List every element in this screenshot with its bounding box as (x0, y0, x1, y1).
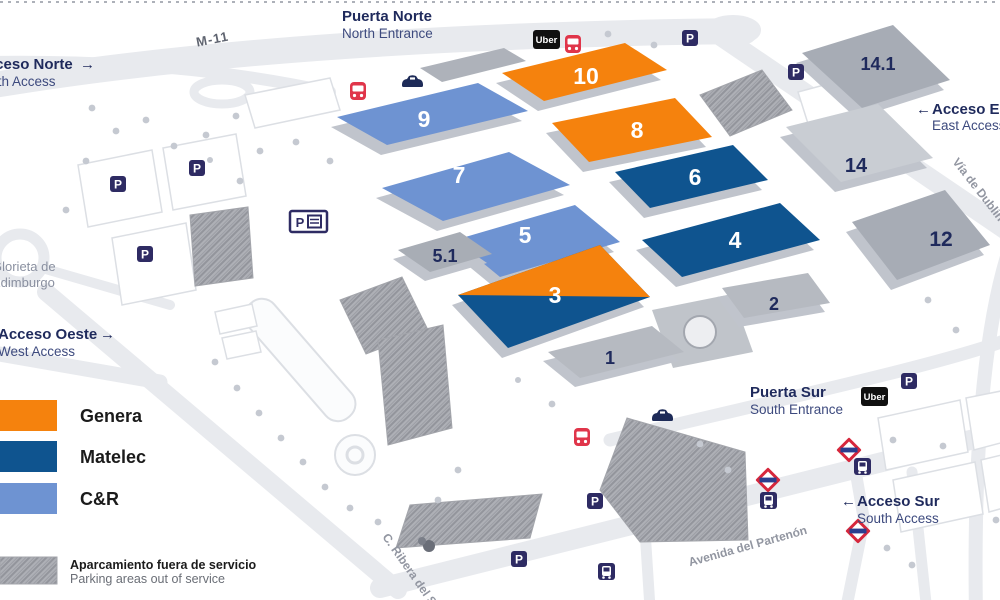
parking-icon: P (788, 64, 804, 80)
acceso-sur-arrow-icon: ← (841, 493, 856, 510)
acceso-norte-arrow-icon: → (80, 56, 95, 73)
hall-2: 2 (717, 273, 830, 327)
bus-icon (350, 82, 366, 100)
puerta-sur-subtitle: South Entrance (750, 402, 843, 417)
svg-text:Uber: Uber (864, 392, 886, 403)
legend-swatch-cr (0, 483, 57, 514)
bus-station-icon (598, 563, 615, 580)
acceso-oeste-arrow-icon: → (100, 326, 115, 343)
svg-text:P: P (792, 66, 800, 80)
glorieta-edimburgo-label-line1: Glorieta de (0, 259, 56, 274)
acceso-norte-title: Acceso Norte (0, 56, 73, 73)
legend-label-matelec: Matelec (80, 447, 146, 467)
uber-badge: Uber (533, 30, 560, 49)
svg-text:P: P (686, 32, 694, 46)
hall-2-label: 2 (769, 294, 779, 314)
puerta-norte-title: Puerta Norte (342, 8, 432, 25)
acceso-sur-subtitle: South Access (857, 511, 939, 526)
acceso-este-arrow-icon: ← (916, 101, 931, 118)
legend-label-cr: C&R (80, 489, 119, 509)
hall-14-1-label: 14.1 (860, 54, 895, 74)
train-icon (760, 492, 777, 509)
hall-10: 10 (496, 43, 667, 111)
parking-icon: P (511, 551, 527, 567)
metro-icon (838, 439, 859, 460)
hall-7-label: 7 (453, 162, 466, 188)
svg-text:P: P (193, 162, 201, 176)
bus-icon (565, 35, 581, 53)
taxi-icon (652, 409, 673, 421)
legend-swatch-parking-out-of-service (0, 557, 57, 584)
svg-text:P: P (114, 178, 122, 192)
svg-text:P: P (591, 495, 599, 509)
hall-6-label: 6 (689, 164, 702, 190)
parking-icon: P (682, 30, 698, 46)
train-icon (854, 458, 871, 475)
parking-icon: P (587, 493, 603, 509)
hall-4: 4 (636, 203, 820, 287)
parking-garage-icon: P (290, 211, 327, 232)
parking-icon: P (901, 373, 917, 389)
svg-text:P: P (296, 215, 305, 230)
glorieta-edimburgo-label-line2: Edimburgo (0, 275, 55, 290)
hall-5-label: 5 (519, 222, 532, 248)
acceso-este-subtitle: East Access (932, 118, 1000, 133)
taxi-icon (402, 75, 423, 87)
acceso-este-title: Acceso Este (932, 101, 1000, 118)
acceso-oeste-title: Acceso Oeste (0, 326, 97, 343)
acceso-sur-title: Acceso Sur (857, 493, 940, 510)
hall-10-label: 10 (573, 63, 599, 89)
svg-text:P: P (141, 248, 149, 262)
hall-3-label: 3 (549, 282, 562, 308)
parking-icon: P (189, 160, 205, 176)
hall-9-label: 9 (418, 106, 431, 132)
legend-parking-note-es: Aparcamiento fuera de servicio (70, 558, 257, 572)
legend-swatch-genera (0, 400, 57, 431)
acceso-norte-subtitle: North Access (0, 74, 56, 89)
hall-12-label: 12 (929, 228, 952, 251)
hall-14: 14 (780, 104, 933, 192)
legend-label-genera: Genera (80, 406, 143, 426)
puerta-sur-title: Puerta Sur (750, 384, 826, 401)
svg-text:Uber: Uber (536, 35, 558, 46)
svg-text:P: P (905, 375, 913, 389)
north-roundabout (194, 80, 250, 104)
hall-4-label: 4 (729, 227, 742, 253)
legend-parking-note-en: Parking areas out of service (70, 572, 225, 586)
venue-map: 9 7 5 5.1 3 10 8 6 4 (0, 0, 1000, 600)
hall-8-label: 8 (631, 117, 644, 143)
legend-swatch-matelec (0, 441, 57, 472)
uber-badge: Uber (861, 387, 888, 406)
hall-1-label: 1 (605, 348, 615, 368)
parking-icon: P (110, 176, 126, 192)
puerta-norte-subtitle: North Entrance (342, 26, 433, 41)
svg-text:P: P (515, 553, 523, 567)
acceso-oeste-subtitle: West Access (0, 344, 75, 359)
hall-14-label: 14 (845, 155, 868, 177)
bus-icon (574, 428, 590, 446)
parking-icon: P (137, 246, 153, 262)
hall-5-1-label: 5.1 (432, 246, 457, 266)
